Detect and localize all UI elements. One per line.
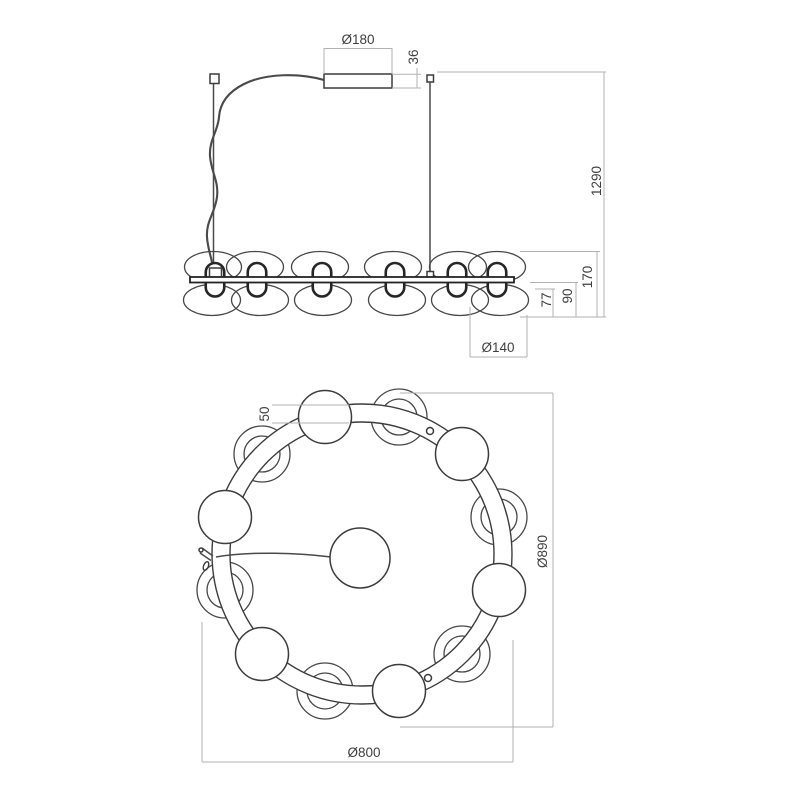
support-bar: [190, 277, 514, 283]
fixture-height-label: 170: [580, 266, 595, 289]
dim-canopy-diameter: Ø180: [324, 32, 392, 74]
dim-lower-body-height: 90: [530, 283, 578, 318]
canopy-diameter-label: Ø180: [341, 32, 374, 47]
glass-shades-lower: [184, 285, 529, 316]
glass-diameter-label: Ø140: [481, 340, 514, 355]
top-view: 50 Ø890 Ø800: [197, 389, 553, 762]
ceiling-anchor-left-icon: [210, 74, 219, 84]
power-cable: [207, 75, 324, 276]
mounting-hole-top: [427, 428, 434, 435]
ceiling-anchor-right-icon: [427, 75, 434, 82]
pendant-light-drawing: Ø180 36 1290 170 90 77 Ø140: [0, 0, 800, 800]
dim-glass-diameter: Ø140: [470, 307, 527, 357]
center-canopy-top-view: [330, 528, 390, 588]
ring-tube-width-label: 50: [257, 406, 272, 421]
glass-drop-label: 77: [539, 292, 554, 307]
lower-body-height-label: 90: [560, 288, 575, 303]
technical-drawing-canvas: Ø180 36 1290 170 90 77 Ø140: [0, 0, 800, 800]
front-view: Ø180 36 1290 170 90 77 Ø140: [184, 32, 607, 357]
dim-glass-drop: 77: [535, 289, 555, 317]
dim-fixture-height: 170: [520, 252, 600, 318]
mounting-hole-bottom: [425, 675, 432, 682]
ring-diameter-label: Ø800: [347, 745, 380, 760]
overall-diameter-label: Ø890: [535, 535, 550, 568]
canopy-height-label: 36: [406, 49, 421, 64]
feed-cable-top-view: [216, 553, 331, 557]
suspension-height-label: 1290: [589, 166, 604, 196]
cable-clamp: [199, 548, 213, 571]
dim-canopy-height: 36: [392, 49, 421, 88]
ceiling-canopy: [324, 74, 392, 88]
